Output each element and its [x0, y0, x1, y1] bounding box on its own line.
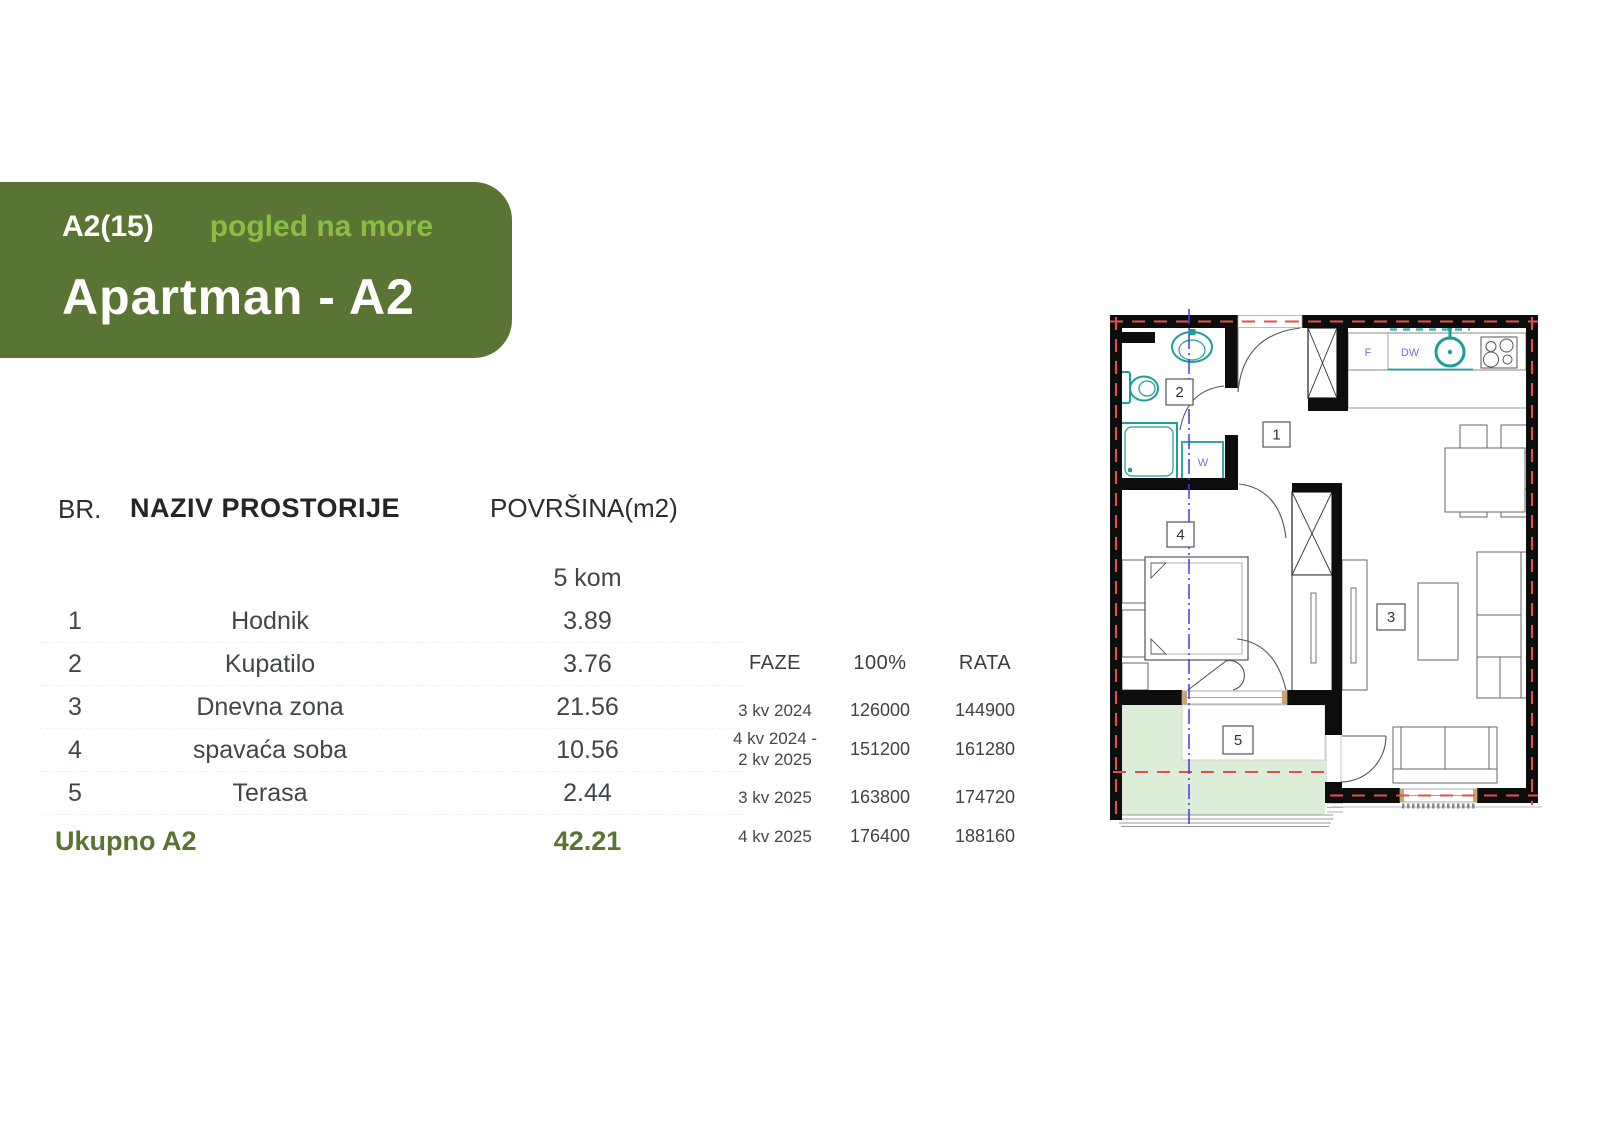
phase-period: 4 kv 2025	[715, 826, 835, 847]
table-row: 1 Hodnik 3.89	[40, 600, 745, 643]
entry-closet	[1308, 328, 1337, 398]
room-area: 3.89	[430, 607, 745, 636]
installment-price: 161280	[925, 739, 1045, 760]
hall-wardrobe	[1292, 492, 1332, 575]
phase-period-line1: 4 kv 2024 -	[733, 729, 817, 748]
room-label-hallway: 1	[1272, 427, 1280, 444]
full-price: 176400	[835, 826, 925, 847]
table-row: 2 Kupatilo 3.76	[40, 643, 745, 686]
bedroom-door-arc	[1239, 484, 1286, 538]
full-price: 126000	[835, 700, 925, 721]
room-name: spavaća soba	[110, 736, 430, 765]
washer-label: W	[1198, 457, 1209, 469]
room-area: 21.56	[430, 693, 745, 722]
total-row: Ukupno A2 42.21	[40, 826, 745, 857]
nightstand	[1122, 560, 1147, 603]
col-header-full-price: 100%	[835, 652, 925, 675]
double-bed	[1145, 557, 1248, 660]
dresser	[1122, 663, 1148, 690]
table-row: 3 Dnevna zona 21.56	[40, 686, 745, 729]
terrace-door-arc	[1341, 736, 1386, 782]
stove-icon	[1481, 337, 1517, 368]
banner: A2(15)pogled na more Apartman - A2	[0, 182, 512, 358]
table-row: 4 spavaća soba 10.56	[40, 729, 745, 772]
phases-header-row: FAZE 100% RATA	[715, 648, 1045, 678]
table-row: 3 kv 2025 163800 174720	[715, 780, 1045, 814]
phase-period: 3 kv 2025	[715, 787, 835, 808]
col-header-installment: RATA	[925, 652, 1045, 675]
room-label-bathroom: 2	[1175, 384, 1183, 401]
living-furniture	[1393, 552, 1533, 783]
room-label-living: 3	[1387, 609, 1395, 626]
bedroom-furniture	[1122, 557, 1248, 690]
room-number: 4	[40, 736, 110, 765]
room-name: Dnevna zona	[110, 693, 430, 722]
entrance-door-arc	[1238, 328, 1300, 392]
room-number: 3	[40, 693, 110, 722]
shower-icon	[1121, 423, 1177, 480]
table-row: 4 kv 2025 176400 188160	[715, 820, 1045, 852]
room-name: Kupatilo	[110, 650, 430, 679]
sea-view-label: pogled na more	[210, 210, 433, 243]
nightstand	[1122, 610, 1147, 657]
total-label: Ukupno A2	[40, 826, 430, 857]
col-header-room-name: NAZIV PROSTORIJE	[130, 493, 400, 524]
sink-icon	[1172, 329, 1212, 362]
table-row: 3 kv 2024 126000 144900	[715, 694, 1045, 726]
fridge-label: F	[1365, 347, 1372, 359]
dining-set	[1445, 425, 1527, 517]
room-number: 5	[40, 779, 110, 808]
loveseat	[1393, 727, 1497, 783]
living-window	[1400, 789, 1477, 806]
installment-price: 174720	[925, 787, 1045, 808]
toilet-icon	[1121, 372, 1158, 403]
phase-period: 3 kv 2024	[715, 700, 835, 721]
rooms-table: 1 Hodnik 3.89 2 Kupatilo 3.76 3 Dnevna z…	[40, 600, 745, 815]
total-area: 42.21	[430, 826, 745, 857]
floor-plan: 1 2 3 4 5 F DW W	[1075, 295, 1550, 845]
kitchen	[1348, 327, 1526, 409]
units-count-subheader: 5 kom	[430, 564, 745, 593]
installment-price: 188160	[925, 826, 1045, 847]
room-area: 10.56	[430, 736, 745, 765]
room-label-bedroom: 4	[1176, 527, 1184, 544]
full-price: 163800	[835, 787, 925, 808]
room-name: Hodnik	[110, 607, 430, 636]
room-area: 3.76	[430, 650, 745, 679]
installment-price: 144900	[925, 700, 1045, 721]
apartment-code: A2(15)	[62, 210, 154, 243]
dining-table	[1445, 448, 1525, 512]
col-header-phase: FAZE	[715, 652, 835, 675]
table-row: 5 Terasa 2.44	[40, 772, 745, 815]
coffee-table	[1418, 583, 1458, 660]
tall-cabinet	[1292, 575, 1332, 700]
phase-period-line2: 2 kv 2025	[738, 750, 812, 769]
terrace-door-opening	[1326, 735, 1341, 782]
page-title: Apartman - A2	[62, 268, 415, 326]
table-row: 4 kv 2024 - 2 kv 2025 151200 161280	[715, 726, 1045, 772]
full-price: 151200	[835, 739, 925, 760]
sliding-door	[1182, 691, 1287, 704]
room-area: 2.44	[430, 779, 745, 808]
room-number: 2	[40, 650, 110, 679]
side-panel	[1342, 560, 1367, 690]
corner-sofa	[1477, 552, 1533, 698]
col-header-area: POVRŠINA(m2)	[490, 493, 678, 524]
dishwasher-label: DW	[1401, 347, 1420, 359]
room-name: Terasa	[110, 779, 430, 808]
room-number: 1	[40, 607, 110, 636]
phase-period: 4 kv 2024 - 2 kv 2025	[715, 728, 835, 770]
banner-subtitle-row: A2(15)pogled na more	[62, 210, 433, 244]
room-label-terrace: 5	[1234, 732, 1242, 749]
wardrobes	[1292, 328, 1367, 700]
col-header-number: BR.	[58, 494, 101, 525]
phases-table: FAZE 100% RATA 3 kv 2024 126000 144900 4…	[715, 648, 1045, 852]
apartment-datasheet: A2(15)pogled na more Apartman - A2 BR. N…	[0, 0, 1600, 1131]
bifold-door-left	[1188, 661, 1244, 690]
